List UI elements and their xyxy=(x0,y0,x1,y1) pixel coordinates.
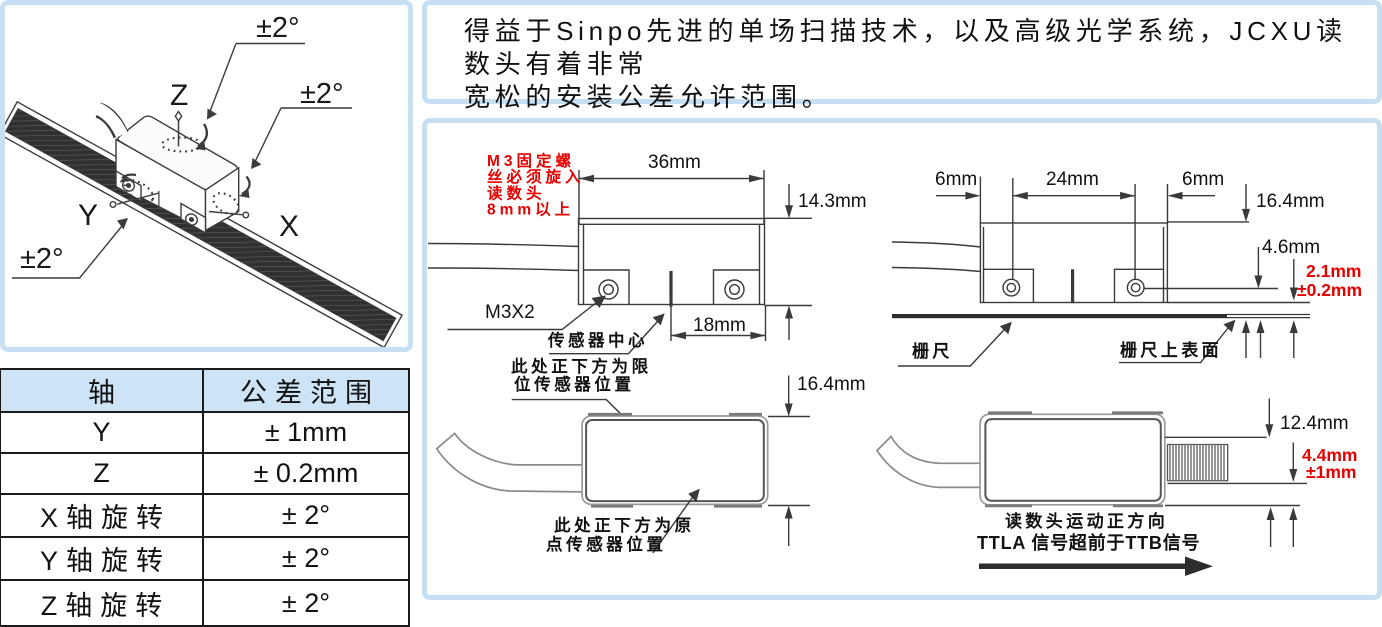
svg-text:丝必须旋入: 丝必须旋入 xyxy=(487,167,585,186)
svg-text:M3固定螺: M3固定螺 xyxy=(487,151,575,170)
svg-text:18mm: 18mm xyxy=(693,315,746,336)
svg-text:±2°: ±2° xyxy=(256,12,300,44)
svg-text:M3X2: M3X2 xyxy=(485,302,535,323)
svg-text:2.1mm: 2.1mm xyxy=(1306,261,1361,281)
svg-text:±1mm: ±1mm xyxy=(1306,462,1356,482)
svg-text:±0.2mm: ±0.2mm xyxy=(1297,280,1362,300)
svg-text:Z: Z xyxy=(170,79,188,112)
svg-text:点传感器位置: 点传感器位置 xyxy=(546,534,667,554)
svg-text:8mm以上: 8mm以上 xyxy=(487,201,574,219)
svg-text:TTLA 信号超前于TTB信号: TTLA 信号超前于TTB信号 xyxy=(977,532,1200,553)
svg-text:14.3mm: 14.3mm xyxy=(798,191,867,212)
svg-text:传感器中心: 传感器中心 xyxy=(547,330,648,350)
svg-text:栅尺: 栅尺 xyxy=(912,341,953,361)
svg-text:此处正下方为原: 此处正下方为原 xyxy=(554,515,695,535)
svg-text:栅尺上表面: 栅尺上表面 xyxy=(1120,340,1222,360)
svg-text:6mm: 6mm xyxy=(935,169,977,190)
svg-text:24mm: 24mm xyxy=(1046,169,1099,190)
svg-text:读数头: 读数头 xyxy=(487,184,546,203)
svg-text:16.4mm: 16.4mm xyxy=(1256,191,1325,212)
svg-text:±2°: ±2° xyxy=(20,243,64,275)
svg-text:12.4mm: 12.4mm xyxy=(1280,413,1349,434)
svg-text:36mm: 36mm xyxy=(648,152,701,173)
svg-text:读数头运动正方向: 读数头运动正方向 xyxy=(1005,511,1168,531)
svg-text:X: X xyxy=(279,210,299,243)
svg-text:6mm: 6mm xyxy=(1182,169,1224,190)
svg-text:此处正下方为限: 此处正下方为限 xyxy=(511,356,652,376)
svg-text:4.6mm: 4.6mm xyxy=(1262,237,1320,258)
svg-text:±2°: ±2° xyxy=(300,78,344,110)
svg-text:位传感器位置: 位传感器位置 xyxy=(514,374,635,394)
svg-text:16.4mm: 16.4mm xyxy=(797,374,866,395)
svg-text:Y: Y xyxy=(78,199,98,232)
